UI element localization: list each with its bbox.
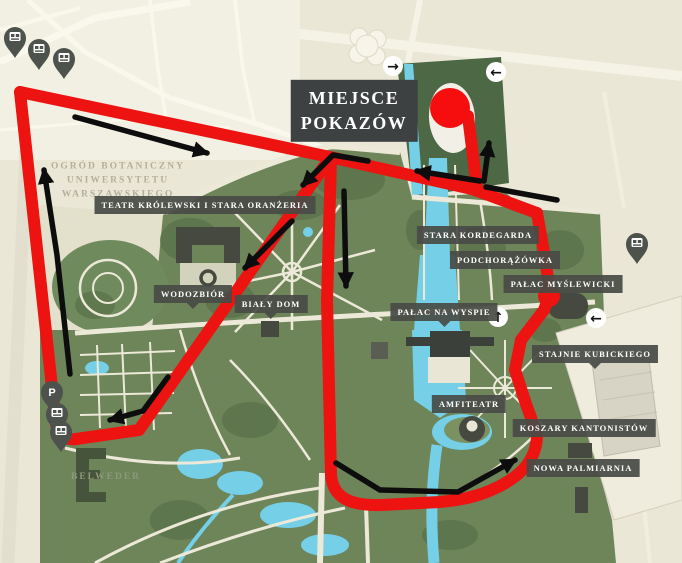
arrow-center-down [344, 191, 346, 286]
label-wodozbior: WODOZBIÓR [154, 285, 232, 303]
bus-icon [56, 426, 67, 435]
label-koszary-kantonistow: KOSZARY KANTONISTÓW [513, 419, 656, 437]
show-location-dot [430, 88, 470, 128]
right-arrow-icon: → [387, 59, 399, 75]
label-teatr-krolewski: TEATR KRÓLEWSKI I STARA ORANŻERIA [95, 196, 316, 214]
palac-na-wyspie-building [430, 331, 470, 357]
nav-arrow-left-top: ← [486, 62, 506, 82]
fountain-plaza [349, 28, 386, 65]
bus-icon [10, 32, 21, 41]
show-place-title: MIEJSCE POKAZÓW [291, 80, 418, 142]
title-line-2: POKAZÓW [301, 111, 408, 136]
bialy-dom-building [261, 321, 279, 337]
label-stara-kordegarda: STARA KORDEGARDA [417, 226, 539, 244]
left-arrow-icon: ← [590, 311, 602, 327]
label-amfiteatr: AMFITEATR [432, 395, 506, 413]
left-arrow-icon: ← [490, 65, 502, 81]
label-podchorazowka: PODCHORĄŻÓWKA [450, 251, 560, 269]
bus-icon [632, 238, 643, 247]
map-screenshot: → ← ↑ ← [0, 0, 682, 563]
nav-arrow-right: → [383, 56, 403, 76]
bus-icon [52, 408, 63, 417]
title-line-1: MIEJSCE [301, 86, 408, 111]
parking-icon: P [48, 387, 55, 399]
label-bialy-dom: BIAŁY DOM [235, 295, 308, 313]
bus-icon [34, 44, 45, 53]
label-palac-na-wyspie: PAŁAC NA WYSPIE [390, 303, 497, 321]
bus-icon [59, 53, 70, 62]
nav-arrow-left-mid: ← [586, 308, 606, 328]
label-stajnie-kubickiego: STAJNIE KUBICKIEGO [532, 345, 658, 363]
label-nowa-palmiarnia: NOWA PALMIARNIA [527, 459, 640, 477]
belweder-label: BELWEDER [71, 471, 141, 485]
label-palac-myslewicki: PAŁAC MYŚLEWICKI [504, 275, 623, 293]
